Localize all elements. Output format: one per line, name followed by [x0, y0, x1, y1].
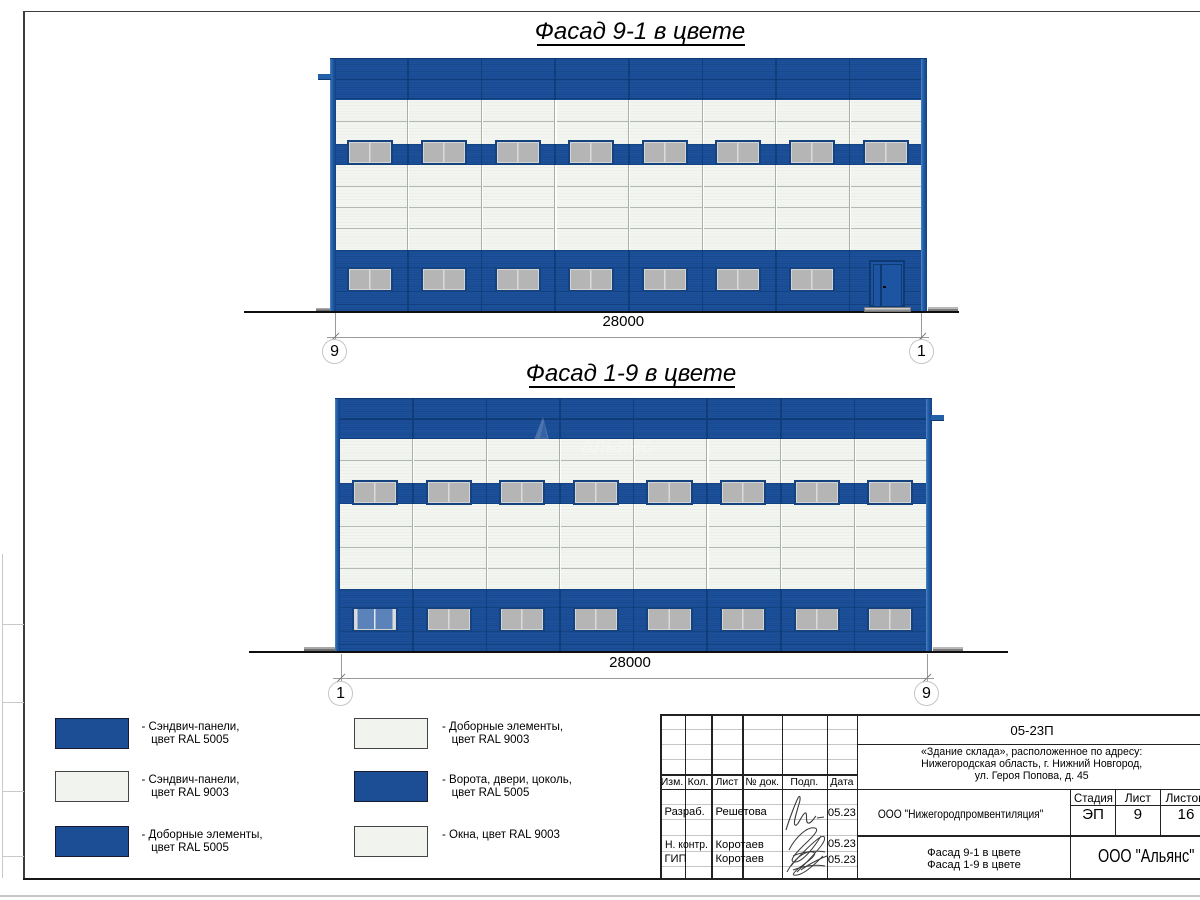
- svg-text:альянс: альянс: [581, 433, 652, 456]
